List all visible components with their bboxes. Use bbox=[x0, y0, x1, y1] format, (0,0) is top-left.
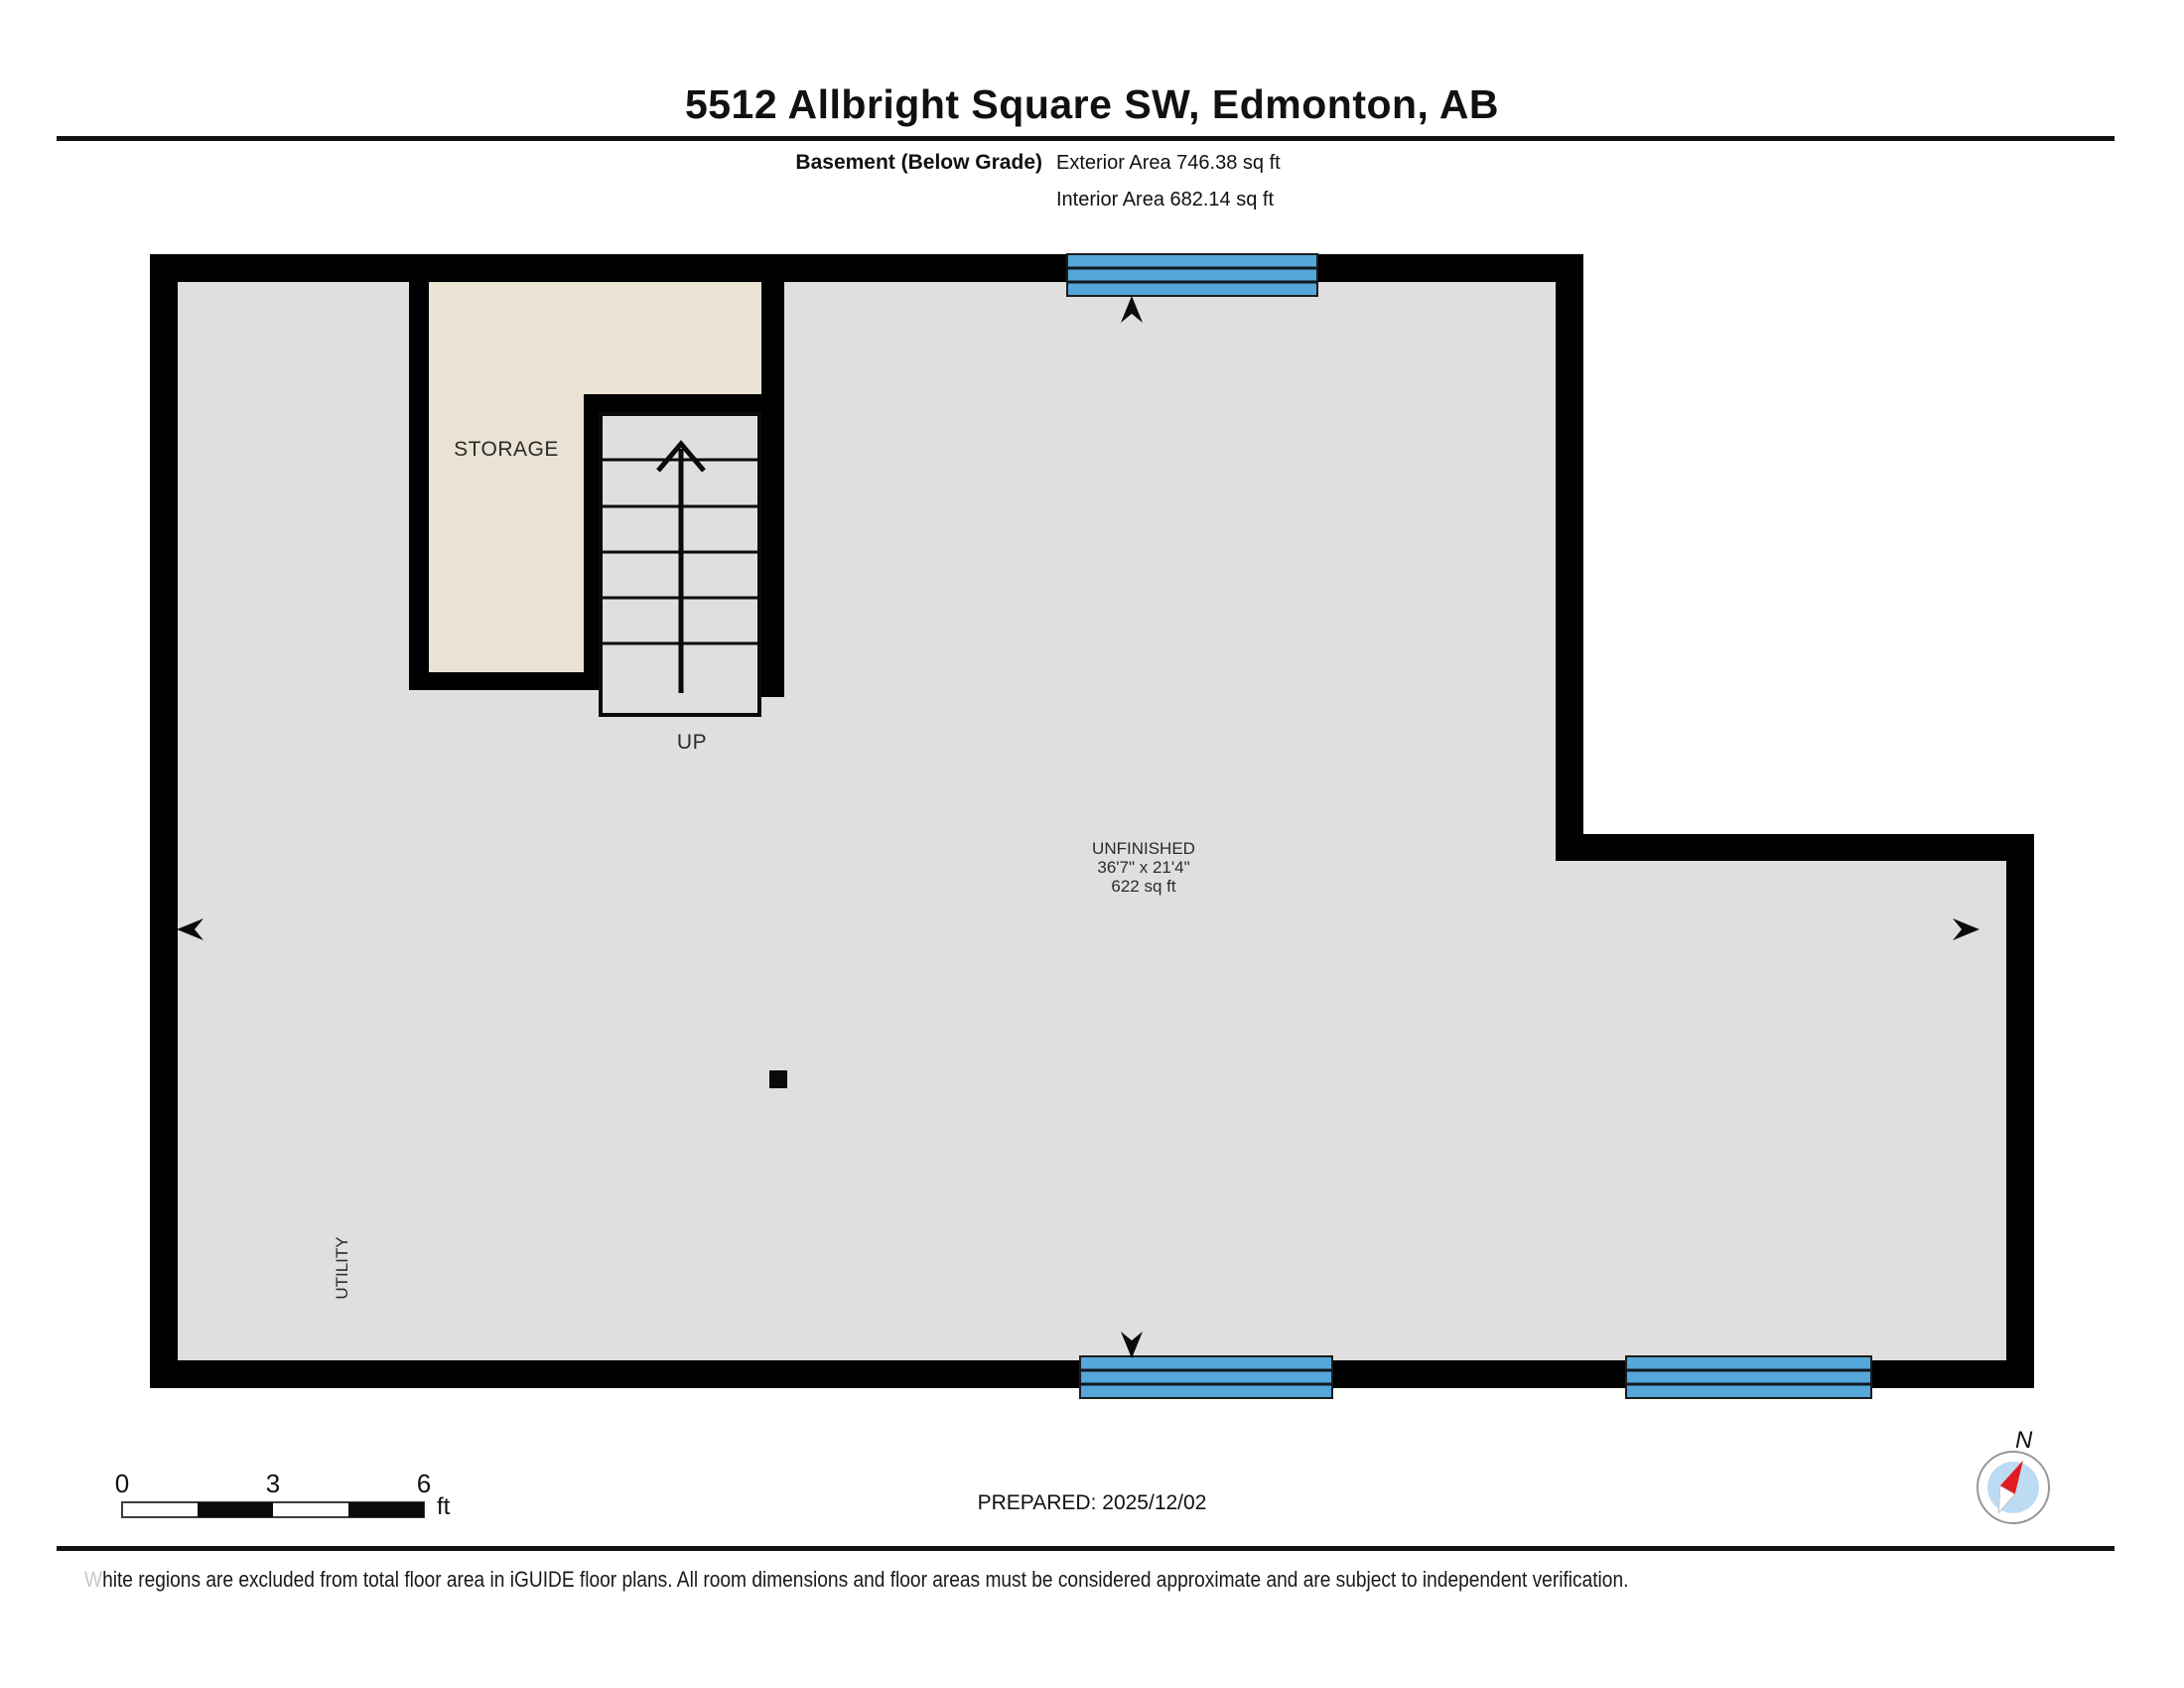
disclaimer-text: White regions are excluded from total fl… bbox=[84, 1567, 1628, 1593]
storage-label: STORAGE bbox=[427, 438, 586, 462]
stairs-up-label: UP bbox=[657, 731, 727, 755]
staircase bbox=[601, 414, 759, 715]
north-label: N bbox=[2015, 1427, 2032, 1455]
floor-plan-page: 5512 Allbright Square SW, Edmonton, AB B… bbox=[0, 0, 2184, 1688]
footer-divider bbox=[57, 1546, 2115, 1551]
unfinished-room-label: UNFINISHED 36'7" x 21'4" 622 sq ft bbox=[1024, 839, 1263, 896]
disclaimer-body: hite regions are excluded from total flo… bbox=[102, 1567, 1628, 1592]
disclaimer-first-letter: W bbox=[84, 1567, 102, 1592]
utility-label: UTILITY bbox=[333, 1218, 352, 1318]
window-top bbox=[1067, 254, 1317, 296]
storage-bottom-wall bbox=[409, 672, 600, 690]
stair-right-wall bbox=[761, 282, 784, 697]
unfinished-name: UNFINISHED bbox=[1024, 839, 1263, 858]
stair-top-wall bbox=[584, 394, 784, 414]
window-bottom-left bbox=[1080, 1356, 1332, 1398]
column-post bbox=[769, 1070, 787, 1088]
prepared-date: PREPARED: 2025/12/02 bbox=[0, 1491, 2184, 1515]
unfinished-dimensions: 36'7" x 21'4" bbox=[1024, 858, 1263, 877]
stair-left-wall bbox=[584, 394, 600, 690]
storage-left-wall bbox=[409, 282, 429, 672]
window-bottom-right bbox=[1626, 1356, 1871, 1398]
unfinished-area: 622 sq ft bbox=[1024, 877, 1263, 896]
